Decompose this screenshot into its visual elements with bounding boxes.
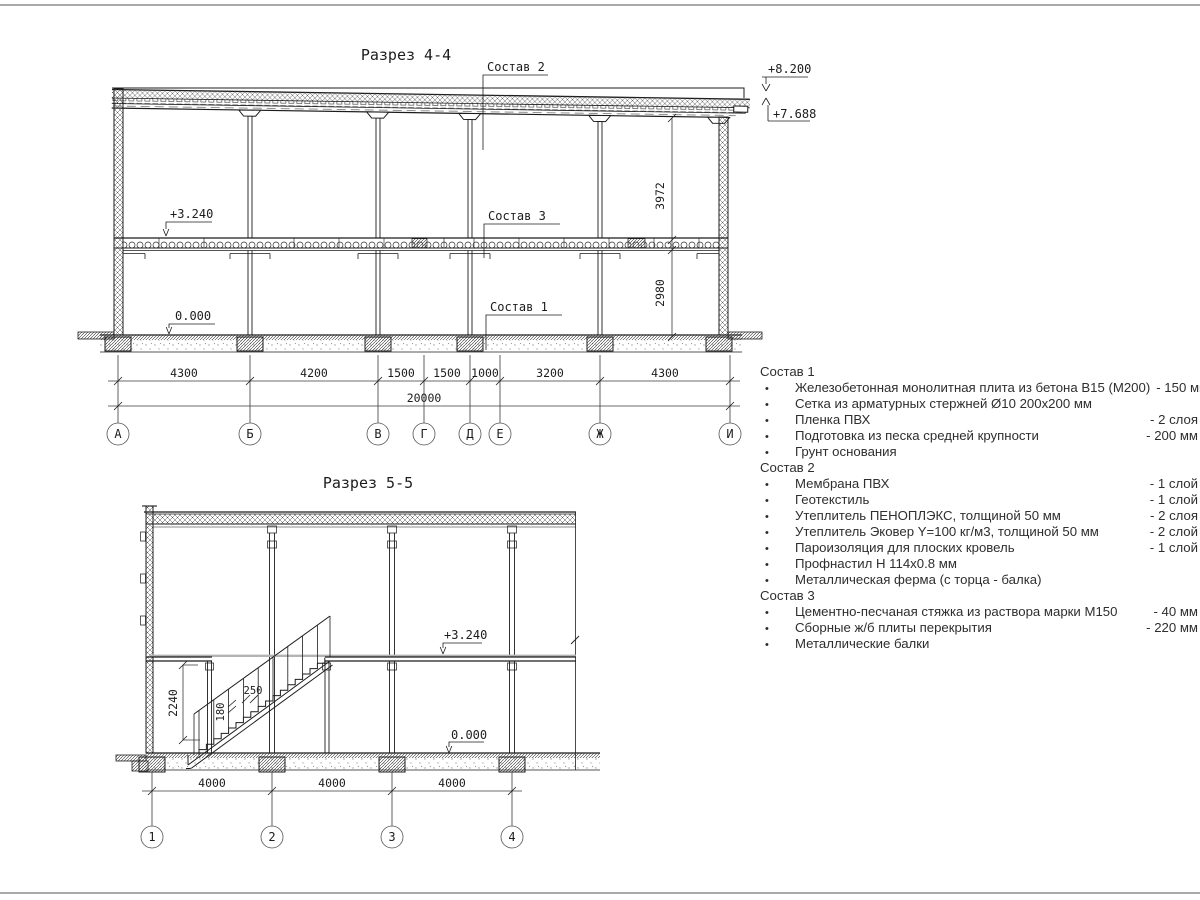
callout-c1-label: Состав 1 (490, 300, 548, 314)
composition-item-value: - 200 мм (1140, 428, 1198, 444)
dim-span: 4000 (198, 776, 226, 790)
composition-item: •Пленка ПВХ- 2 слоя (760, 412, 1198, 428)
composition-item-text: Пленка ПВХ (795, 412, 870, 428)
rail-dim-line (183, 665, 200, 740)
composition-item-value: - 150 мм (1150, 380, 1200, 396)
composition-item-text: Цементно-песчаная стяжка из раствора мар… (795, 604, 1117, 620)
level-mark-floor (163, 222, 212, 236)
wall-face-plates (141, 532, 146, 625)
level-mark-ground-55 (446, 742, 484, 753)
dim-floor1-height: 2980 (653, 279, 667, 307)
composition-title: Состав 1 (760, 364, 1198, 380)
section-5-5-title: Разрез 5-5 (323, 474, 413, 492)
roof-band-5-5 (153, 514, 576, 524)
composition-item-value: - 2 слоя (1144, 412, 1198, 428)
slab-solid-panel (412, 239, 427, 248)
composition-item-value: - 1 слой (1144, 540, 1198, 556)
level-mark-parapet (762, 77, 808, 91)
composition-item-value: - 2 слоя (1144, 508, 1198, 524)
composition-item: •Цементно-песчаная стяжка из раствора ма… (760, 604, 1198, 620)
composition-item: •Утеплитель Эковер Y=100 кг/м3, толщиной… (760, 524, 1198, 540)
composition-item: •Грунт основания (760, 444, 1198, 460)
dim-tread: 250 (244, 685, 263, 697)
axis-label: А (114, 427, 122, 441)
composition-item-text: Мембрана ПВХ (795, 476, 889, 492)
composition-item: •Подготовка из песка средней крупности- … (760, 428, 1198, 444)
composition-item: •Железобетонная монолитная плита из бето… (760, 380, 1198, 396)
composition-item-value: - 40 мм (1147, 604, 1198, 620)
dim-span: 4300 (651, 366, 679, 380)
axis-label: Е (496, 427, 503, 441)
level-mark-floor-55 (440, 643, 482, 654)
callout-c3-label: Состав 3 (488, 209, 546, 223)
composition-item-text: Сборные ж/б плиты перекрытия (795, 620, 992, 636)
floor-landing-left (146, 657, 212, 661)
column-splice-plates (206, 526, 517, 670)
bullet-icon: • (760, 413, 795, 429)
axis-bubbles-5-5 (141, 826, 523, 848)
axis-extension-lines (118, 355, 730, 423)
bullet-icon: • (760, 493, 795, 509)
dim-riser: 180 (215, 703, 227, 722)
axis-label: В (374, 427, 381, 441)
floor-screed-5-5 (146, 753, 600, 758)
composition-lists: Состав 1 •Железобетонная монолитная плит… (760, 364, 1198, 652)
composition-item: •Сетка из арматурных стержней Ø10 200х20… (760, 396, 1198, 412)
wall-left (114, 89, 123, 335)
floor-right (325, 657, 576, 661)
bullet-icon: • (760, 381, 795, 397)
composition-title: Состав 2 (760, 460, 1198, 476)
bullet-icon: • (760, 509, 795, 525)
dim-span: 4300 (170, 366, 198, 380)
floor-screed (100, 335, 742, 340)
axis-label: 2 (268, 830, 275, 844)
composition-item-text: Металлические балки (795, 636, 929, 652)
axis-label: Г (420, 427, 427, 441)
bullet-icon: • (760, 397, 795, 413)
level-ground-55: 0.000 (451, 728, 487, 742)
level-floor-44: +3.240 (170, 207, 213, 221)
composition-item: •Металлические балки (760, 636, 1198, 652)
composition-item-text: Профнастил Н 114х0.8 мм (795, 556, 957, 572)
roof-assembly-4-4 (112, 90, 750, 124)
level-mark-ground (166, 324, 215, 334)
bullet-icon: • (760, 557, 795, 573)
bullet-icon: • (760, 621, 795, 637)
columns-4-4 (248, 116, 602, 335)
dim-span: 3200 (536, 366, 564, 380)
axis-label: Ж (596, 427, 604, 441)
slab-solid-panel (628, 239, 645, 248)
dim-floor2-height: 3972 (653, 182, 667, 210)
axis-label: 4 (508, 830, 515, 844)
level-parapet: +8.200 (768, 62, 811, 76)
composition-item-text: Железобетонная монолитная плита из бетон… (795, 380, 1150, 396)
composition-item-text: Сетка из арматурных стержней Ø10 200х200… (795, 396, 1092, 412)
ledge-right (728, 332, 762, 339)
bullet-icon: • (760, 429, 795, 445)
composition-item-text: Пароизоляция для плоских кровель (795, 540, 1015, 556)
level-floor-55: +3.240 (444, 628, 487, 642)
dim-span: 4000 (438, 776, 466, 790)
axis-label: И (726, 427, 733, 441)
composition-item-value: - 1 слой (1144, 492, 1198, 508)
axis-label: 1 (148, 830, 155, 844)
bullet-icon: • (760, 605, 795, 621)
sand-bed-5-5 (146, 758, 600, 770)
composition-item: •Сборные ж/б плиты перекрытия- 220 мм (760, 620, 1198, 636)
composition-item: •Мембрана ПВХ- 1 слой (760, 476, 1198, 492)
composition-item: •Пароизоляция для плоских кровель- 1 сло… (760, 540, 1198, 556)
section-4-4-title: Разрез 4-4 (361, 46, 451, 64)
axis-label: Б (246, 427, 253, 441)
bullet-icon: • (760, 525, 795, 541)
section-5-5-structure (116, 506, 600, 772)
drawing-sheet: Разрез 4-4 Состав 2 Состав 3 Состав 1 +8… (0, 0, 1200, 900)
composition-title: Состав 3 (760, 588, 1198, 604)
bullet-icon: • (760, 541, 795, 557)
bullet-icon: • (760, 445, 795, 461)
section-4-4-dimensions (107, 75, 810, 445)
callout-c2-label: Состав 2 (487, 60, 545, 74)
composition-item: •Геотекстиль- 1 слой (760, 492, 1198, 508)
bullet-icon: • (760, 637, 795, 653)
composition-item-text: Геотекстиль (795, 492, 869, 508)
composition-item-text: Грунт основания (795, 444, 897, 460)
axis-label: 3 (388, 830, 395, 844)
axis-label: Д (466, 427, 474, 441)
section-5-5-dimensions (141, 643, 523, 848)
stair-stringer (186, 661, 333, 769)
dim-span: 4200 (300, 366, 328, 380)
wall-left-5-5 (146, 506, 153, 753)
dim-rail-height: 2240 (166, 689, 180, 717)
beam-seats (123, 254, 719, 260)
dim-span: 1500 (433, 366, 461, 380)
dim-span: 1000 (471, 366, 499, 380)
cut-tick (571, 636, 579, 644)
stair-railing (194, 616, 330, 714)
composition-item-text: Утеплитель ПЕНОПЛЭКС, толщиной 50 мм (795, 508, 1061, 524)
level-roof-edge: +7.688 (773, 107, 816, 121)
composition-item: •Утеплитель ПЕНОПЛЭКС, толщиной 50 мм- 2… (760, 508, 1198, 524)
composition-item: •Профнастил Н 114х0.8 мм (760, 556, 1198, 572)
composition-item-value: - 2 слой (1144, 524, 1198, 540)
level-ground-44: 0.000 (175, 309, 211, 323)
dim-span: 4000 (318, 776, 346, 790)
dim-span: 1500 (387, 366, 415, 380)
dim-total: 20000 (407, 391, 442, 405)
bullet-icon: • (760, 573, 795, 589)
composition-item-value: - 220 мм (1140, 620, 1198, 636)
wall-right (719, 117, 728, 335)
composition-item: •Металлическая ферма (с торца - балка) (760, 572, 1198, 588)
bullet-icon: • (760, 477, 795, 493)
composition-item-value: - 1 слой (1144, 476, 1198, 492)
composition-item-text: Подготовка из песка средней крупности (795, 428, 1039, 444)
riser-dim-ticks (228, 700, 236, 713)
composition-item-text: Металлическая ферма (с торца - балка) (795, 572, 1041, 588)
sand-bed (100, 340, 742, 352)
composition-item-text: Утеплитель Эковер Y=100 кг/м3, толщиной … (795, 524, 1099, 540)
